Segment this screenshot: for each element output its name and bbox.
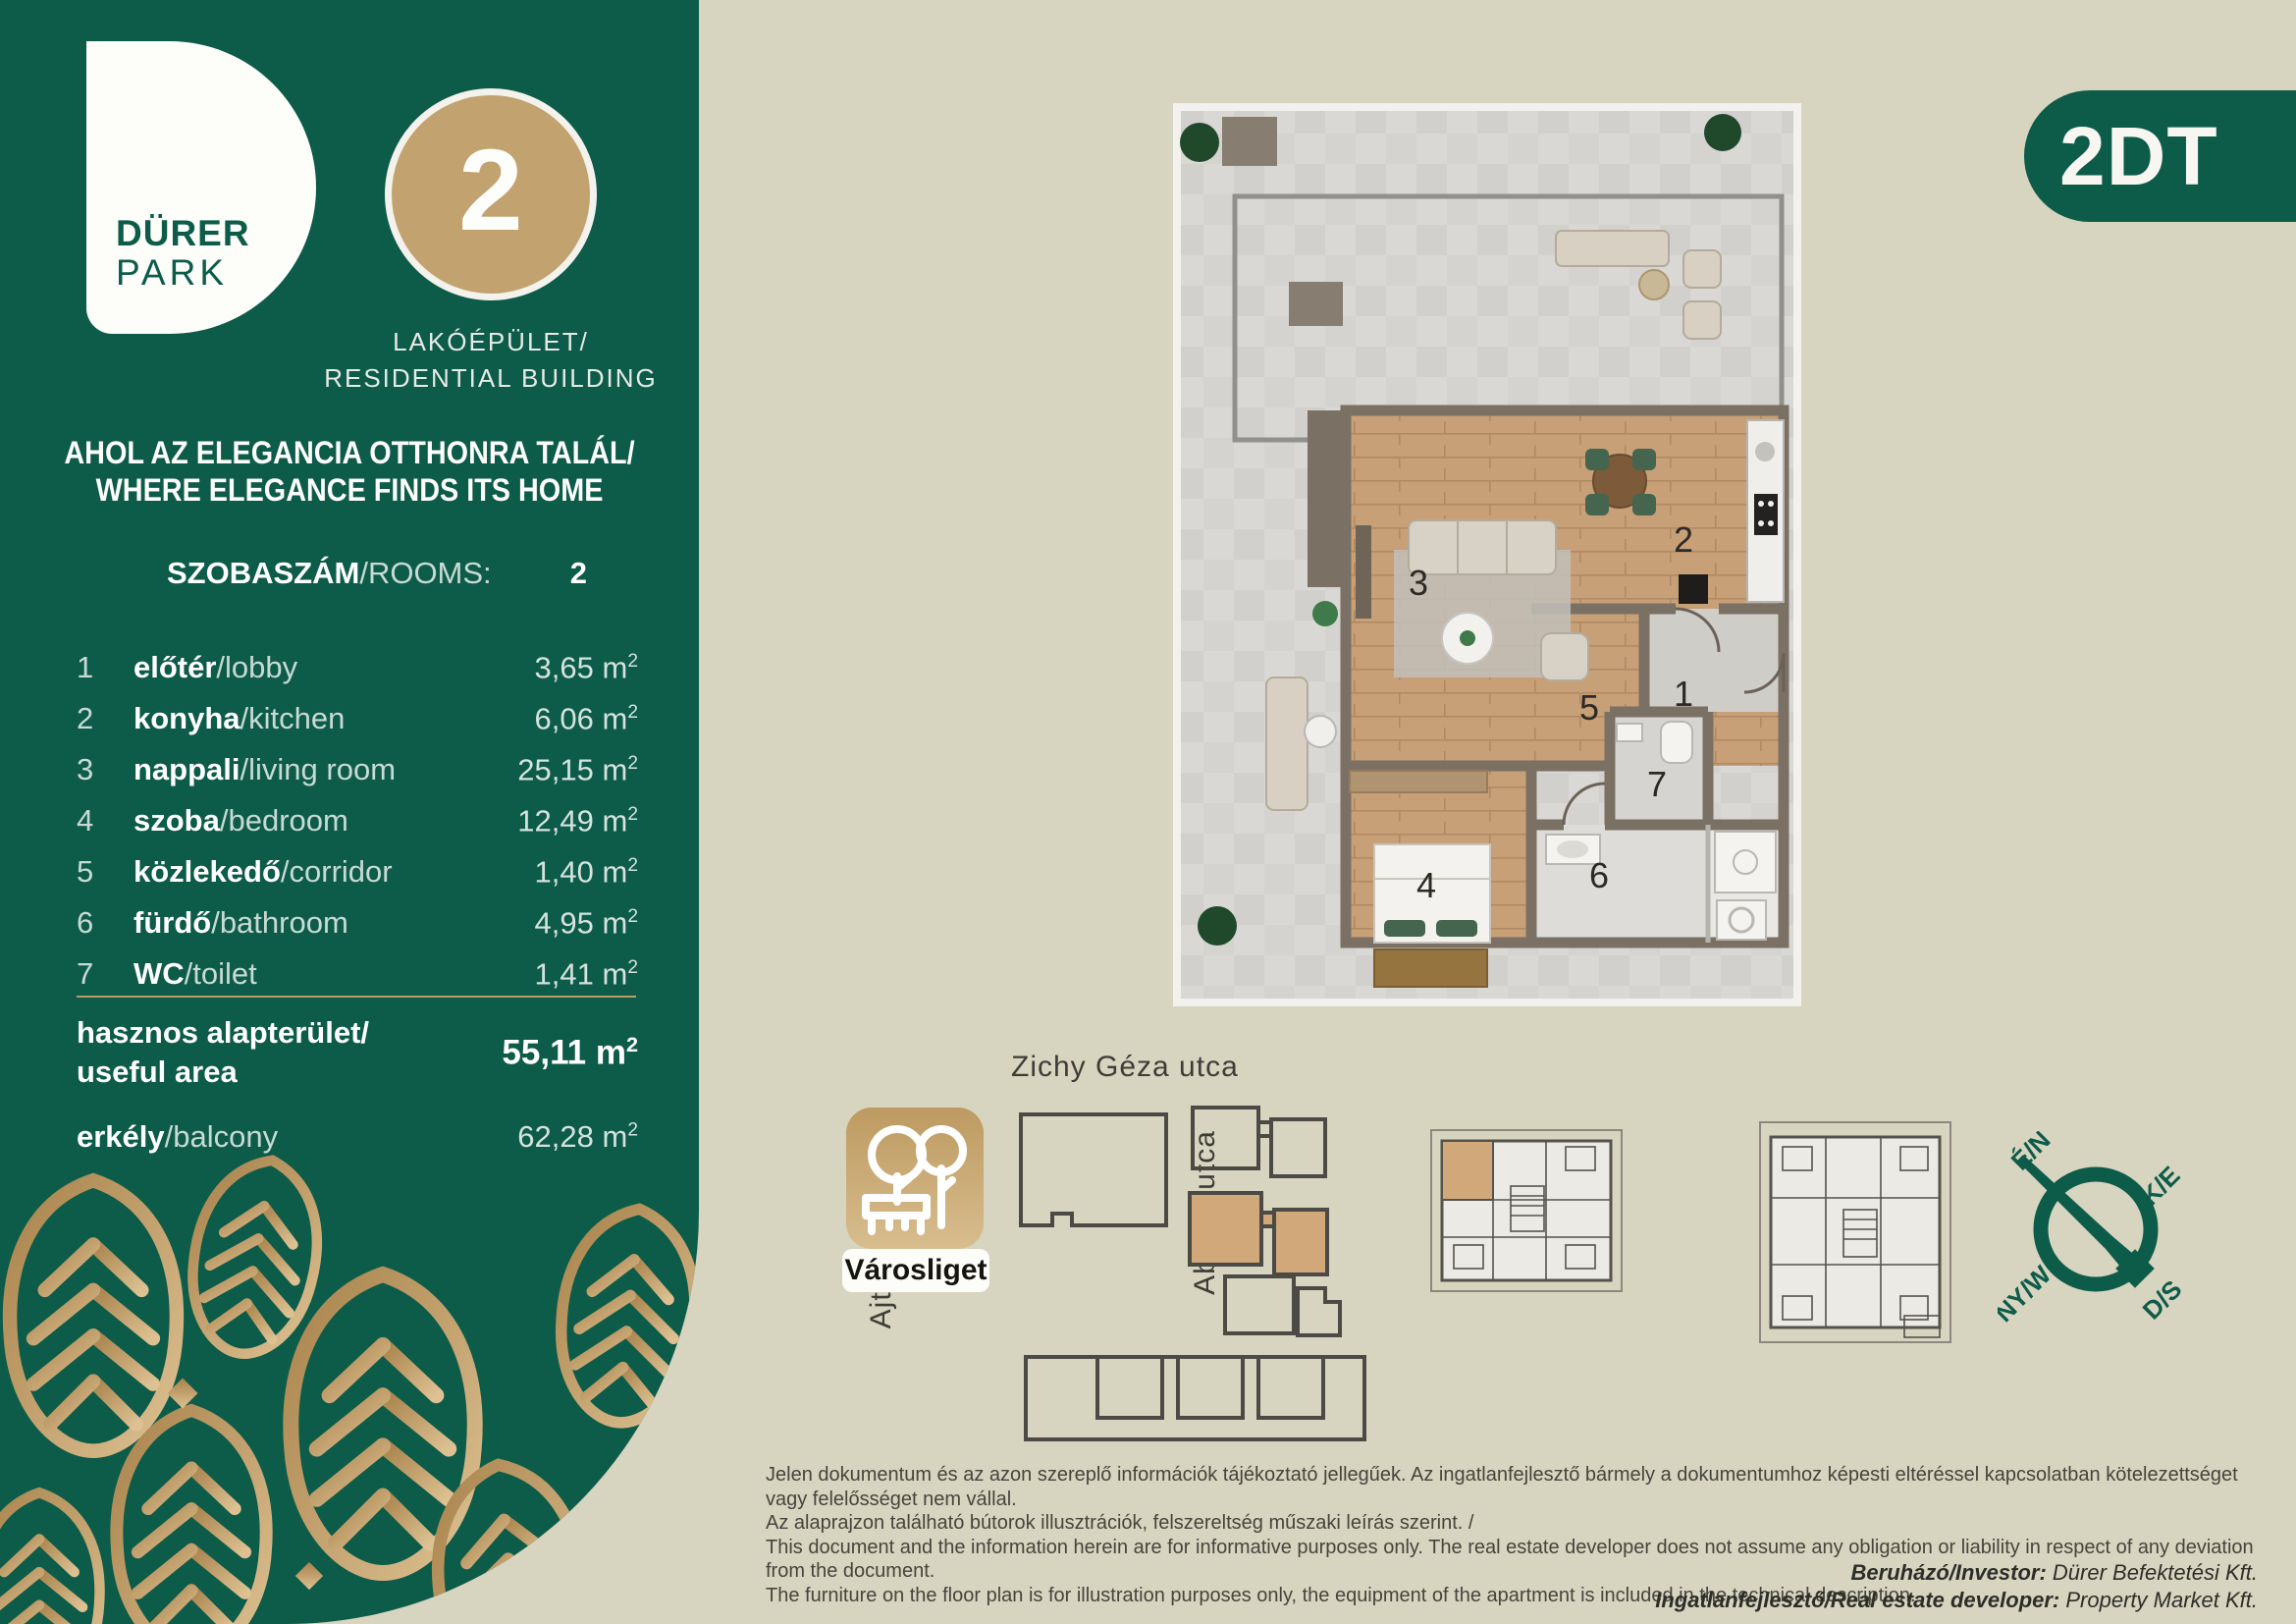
durer-park-logo: DÜRER PARK — [86, 41, 316, 334]
useful-area-row: hasznos alapterület/ useful area 55,11 m… — [77, 1013, 638, 1092]
room-number-label: 4 — [1416, 865, 1436, 905]
key-plan — [1757, 1119, 1953, 1345]
wardrobe — [1350, 771, 1487, 792]
unit-code-badge: 2DT — [2024, 90, 2296, 222]
washbasin — [1617, 724, 1642, 741]
potted-plant — [1312, 601, 1338, 626]
varosliget-park-icon — [846, 1108, 984, 1249]
table-row: 3 nappali/living room 25,15 m2 — [77, 738, 638, 789]
rooms-count-label: SZOBASZÁM/ROOMS: — [167, 556, 492, 591]
building-number-badge: 2 — [385, 88, 597, 300]
divider — [77, 996, 636, 998]
brochure-page: DÜRER PARK 2 LAKÓÉPÜLET/ RESIDENTIAL BUI… — [0, 0, 2296, 1624]
pillow — [1384, 920, 1425, 937]
compass-north-label: É/N — [2005, 1131, 2056, 1176]
rooms-count-value: 2 — [570, 556, 587, 591]
bush — [1180, 123, 1219, 162]
site-building-highlighted — [1190, 1193, 1327, 1274]
bush — [1198, 906, 1237, 946]
rooms-count-row: SZOBASZÁM/ROOMS: 2 — [77, 556, 638, 591]
table-row: 5 közlekedő/corridor 1,40 m2 — [77, 840, 638, 892]
table-row: 7 WC/toilet 1,41 m2 — [77, 943, 638, 994]
room-number-label: 6 — [1589, 855, 1609, 895]
table-row: 1 előtér/lobby 3,65 m2 — [77, 636, 638, 687]
site-building — [1021, 1114, 1166, 1225]
brand-line2: PARK — [116, 253, 250, 293]
park-label: Városliget — [842, 1249, 989, 1292]
floor-plan: 1 2 3 4 5 6 7 — [1173, 103, 1801, 1006]
table-row: 4 szoba/bedroom 12,49 m2 — [77, 789, 638, 840]
bush — [1704, 114, 1741, 151]
deck-bench — [1374, 949, 1487, 987]
toilet — [1661, 722, 1692, 763]
shower — [1715, 832, 1776, 893]
tagline-hu: AHOL AZ ELEGANCIA OTTHONRA TALÁL/ — [35, 434, 665, 471]
compass-icon: É/N K/E D/S NY/W — [1998, 1131, 2194, 1327]
tagline-en: WHERE ELEGANCE FINDS ITS HOME — [35, 471, 665, 509]
table-row: 2 konyha/kitchen 6,06 m2 — [77, 687, 638, 738]
storage-box — [1289, 282, 1343, 326]
building-label-hu: LAKÓÉPÜLET/ — [265, 324, 699, 360]
sidebar-panel: DÜRER PARK 2 LAKÓÉPÜLET/ RESIDENTIAL BUI… — [0, 0, 699, 1624]
sofa — [1409, 520, 1556, 574]
pillow — [1436, 920, 1477, 937]
room-number-label: 3 — [1409, 563, 1428, 603]
outdoor-table — [1639, 270, 1669, 299]
brand-line1: DÜRER — [116, 214, 250, 253]
building-label-en: RESIDENTIAL BUILDING — [265, 360, 699, 397]
disclaimer-line: Jelen dokumentum és az azon szereplő inf… — [766, 1463, 2268, 1511]
sink — [1755, 442, 1775, 461]
room-number-label: 2 — [1674, 519, 1693, 560]
room-number-label: 5 — [1579, 687, 1599, 728]
shaft — [1679, 574, 1708, 604]
site-map — [1001, 1075, 1394, 1458]
outdoor-table — [1305, 716, 1336, 747]
storage-box — [1222, 117, 1277, 166]
tv-console — [1356, 525, 1371, 619]
room-number-label: 1 — [1674, 674, 1693, 714]
building-number: 2 — [458, 124, 523, 257]
outdoor-sofa — [1556, 231, 1669, 266]
table-row: 6 fürdő/bathroom 4,95 m2 — [77, 892, 638, 943]
credits: Beruházó/Investor: Dürer Befektetési Kft… — [1276, 1559, 2258, 1614]
outdoor-sofa — [1266, 677, 1308, 810]
room-number-label: 7 — [1647, 764, 1667, 804]
outdoor-chair — [1683, 301, 1721, 339]
outdoor-chair — [1683, 250, 1721, 288]
armchair — [1541, 633, 1588, 680]
building-label: LAKÓÉPÜLET/ RESIDENTIAL BUILDING — [265, 324, 699, 397]
wall-pillar — [1308, 410, 1346, 587]
investor-line: Beruházó/Investor: Dürer Befektetési Kft… — [1276, 1559, 2258, 1587]
useful-area-value: 55,11 m2 — [502, 1032, 638, 1073]
compass-west-label: NY/W — [1998, 1260, 2057, 1327]
brand-name: DÜRER PARK — [116, 214, 250, 293]
key-plan-unit-highlight — [1442, 1141, 1493, 1200]
leaf-pattern — [0, 1119, 699, 1624]
compass-south-label: D/S — [2137, 1274, 2188, 1326]
cooktop — [1754, 494, 1778, 535]
developer-line: Ingatlanfejlesztő/Real estate developer:… — [1276, 1587, 2258, 1614]
room-table: 1 előtér/lobby 3,65 m2 2 konyha/kitchen … — [77, 636, 638, 994]
key-plan-highlighted — [1428, 1127, 1625, 1294]
washing-machine — [1717, 900, 1766, 940]
disclaimer-line: Az alaprajzon található bútorok illusztr… — [766, 1511, 2268, 1536]
unit-code: 2DT — [2059, 109, 2218, 204]
tagline: AHOL AZ ELEGANCIA OTTHONRA TALÁL/ WHERE … — [0, 434, 699, 509]
